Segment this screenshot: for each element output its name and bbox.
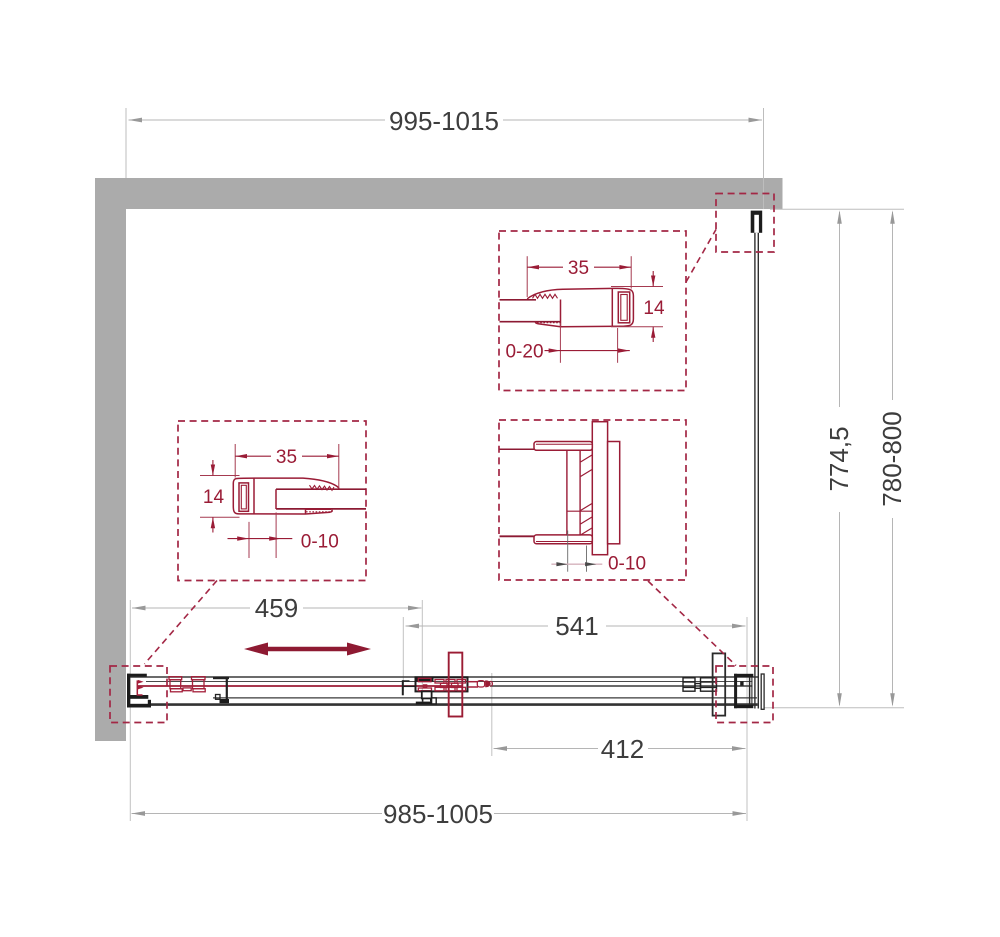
svg-text:14: 14 [643, 298, 665, 319]
svg-text:35: 35 [568, 258, 589, 279]
svg-text:0-10: 0-10 [301, 532, 339, 553]
svg-text:0-20: 0-20 [505, 342, 543, 363]
svg-text:412: 412 [601, 734, 644, 764]
svg-text:35: 35 [276, 447, 297, 468]
svg-text:14: 14 [203, 487, 225, 508]
svg-text:780-800: 780-800 [877, 411, 907, 506]
svg-text:541: 541 [555, 611, 598, 641]
svg-text:774,5: 774,5 [824, 426, 854, 491]
svg-text:985-1005: 985-1005 [383, 799, 493, 829]
svg-text:459: 459 [255, 593, 298, 623]
svg-text:995-1015: 995-1015 [389, 106, 499, 136]
svg-text:0-10: 0-10 [608, 554, 646, 575]
